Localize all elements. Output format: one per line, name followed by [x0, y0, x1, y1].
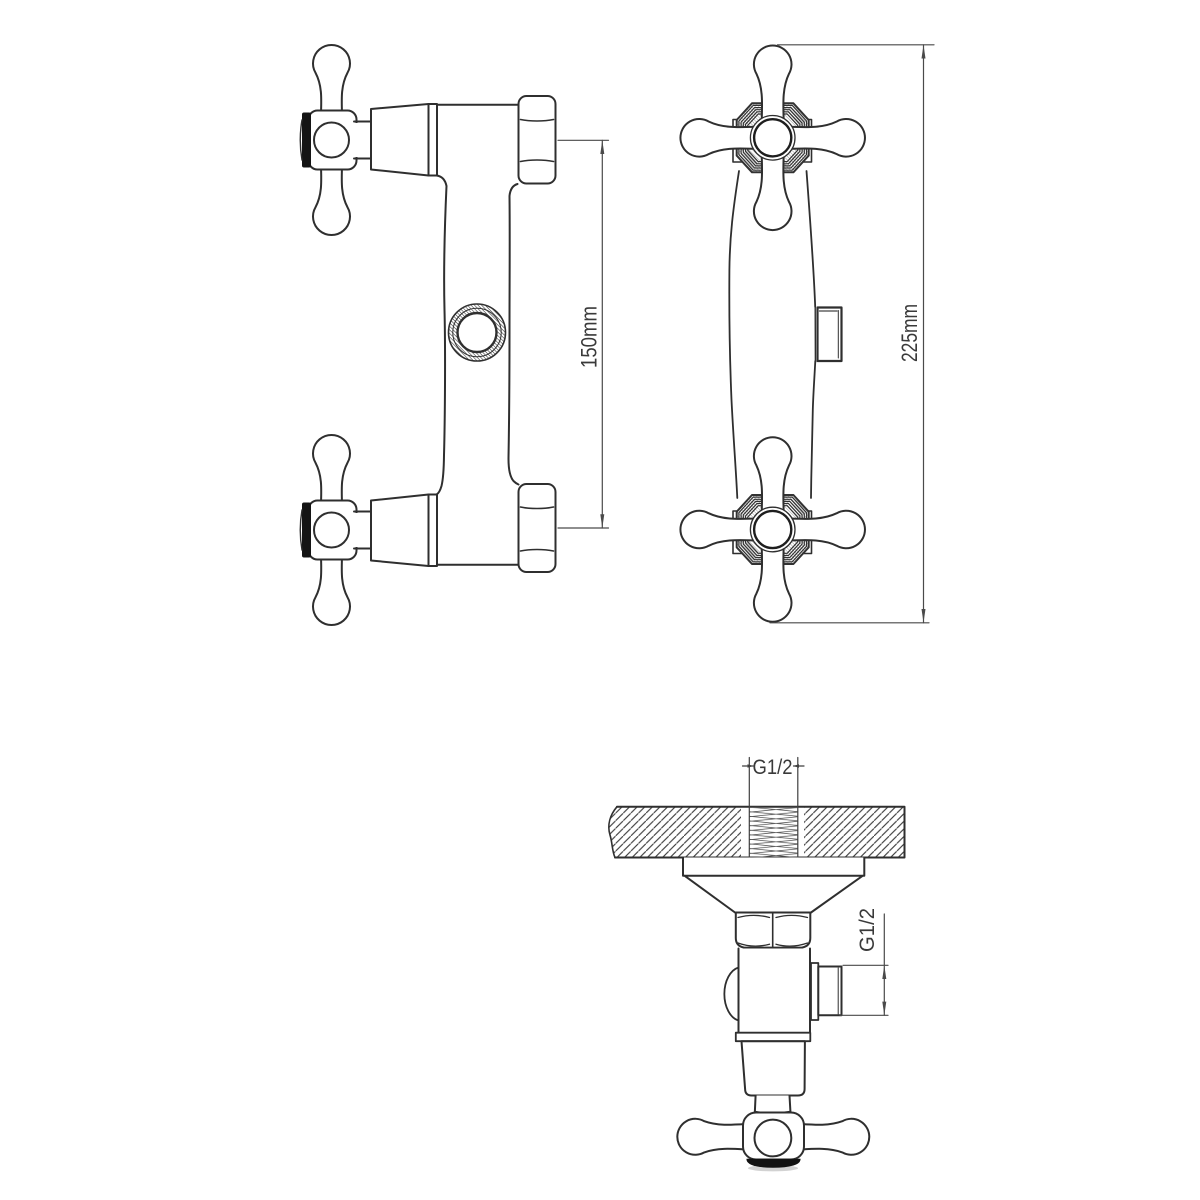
svg-text:G1/2: G1/2	[753, 756, 793, 779]
svg-text:225mm: 225mm	[897, 304, 922, 362]
svg-text:150mm: 150mm	[577, 306, 602, 368]
svg-text:G1/2: G1/2	[856, 908, 879, 952]
